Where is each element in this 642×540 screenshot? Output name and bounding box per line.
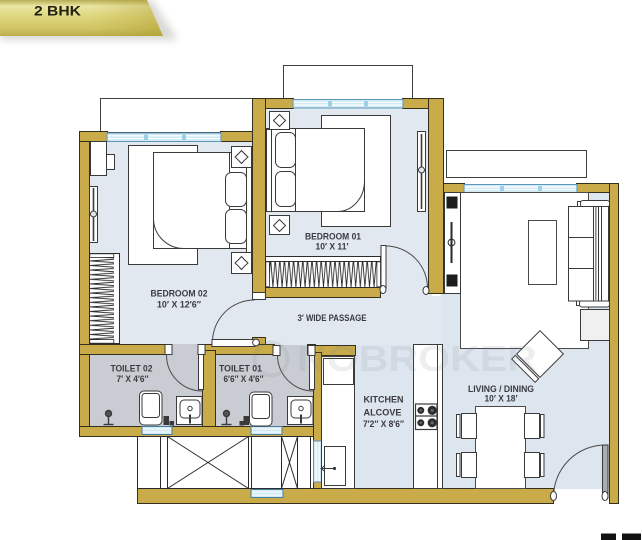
svg-text:10′ X 11′: 10′ X 11′ [316,242,349,252]
svg-text:KITCHEN: KITCHEN [364,395,404,406]
svg-text:TOILET 02: TOILET 02 [111,364,153,375]
svg-text:10′ X 12′6″: 10′ X 12′6″ [157,300,202,310]
svg-text:7′ X 4′6″: 7′ X 4′6″ [117,374,150,384]
svg-text:2 BHK: 2 BHK [34,3,81,19]
svg-text:NOBROKER: NOBROKER [297,338,537,379]
svg-text:3′ WIDE PASSAGE: 3′ WIDE PASSAGE [298,313,367,324]
svg-text:6′6″ X 4′6″: 6′6″ X 4′6″ [224,374,265,384]
svg-text:10′ X 18′: 10′ X 18′ [485,394,518,404]
svg-text:TOILET 01: TOILET 01 [219,364,263,375]
svg-text:BEDROOM 02: BEDROOM 02 [151,289,208,300]
svg-text:7′2″ X 8′6″: 7′2″ X 8′6″ [363,419,405,429]
svg-text:ALCOVE: ALCOVE [364,408,402,419]
